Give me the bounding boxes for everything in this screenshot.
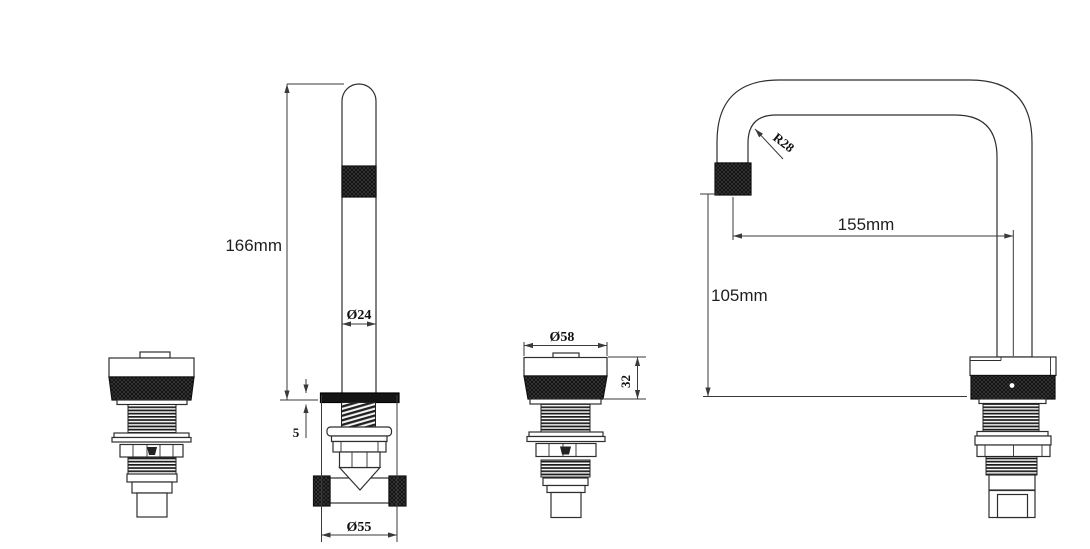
- dim-outlet-height: 105mm: [700, 194, 967, 397]
- body-thread-upper: [983, 404, 1039, 432]
- dim-handle-height-label: 32: [618, 375, 633, 388]
- body-cap: [970, 357, 1056, 376]
- handle2-knurl-band: [524, 376, 607, 399]
- handle-cap: [109, 358, 194, 377]
- handle-washer-1: [114, 433, 189, 438]
- spout-washer-2: [332, 436, 388, 442]
- dim-flange-thickness: 5: [293, 379, 309, 440]
- spout-hex-adapter: [340, 452, 381, 468]
- body-washer-2: [975, 436, 1051, 445]
- handle-top-tab: [140, 352, 170, 358]
- dim-spout-reach: 155mm: [733, 197, 1013, 356]
- dim-flange-thickness-label: 5: [293, 425, 300, 440]
- handle2-washer-2: [527, 437, 605, 442]
- body-thread-lower: [986, 457, 1037, 476]
- deck-flange: [321, 393, 400, 403]
- drawing-surface: 166mm Ø24 5 Ø55 Ø58: [0, 0, 1090, 549]
- handle-thread-upper: [128, 405, 176, 434]
- aerator-knurl-tip: [715, 163, 751, 195]
- dim-handle-diameter: Ø58: [524, 330, 607, 356]
- handle2-base-step: [547, 486, 585, 493]
- body-base-block: [989, 475, 1035, 490]
- dim-flange-diameter-label: Ø55: [347, 520, 372, 535]
- handle-collar: [117, 400, 187, 405]
- spout-section-view: [314, 84, 407, 506]
- dim-bend-radius: R28: [755, 129, 798, 159]
- handle2-thread-lower: [541, 460, 590, 477]
- body-collar: [979, 399, 1046, 404]
- handle-side-view: [109, 352, 194, 517]
- handle-inlet-stem: [137, 493, 167, 517]
- dim-handle-height: 32: [604, 357, 646, 399]
- spout-shank-thread: [342, 403, 376, 428]
- dim-tube-diameter-label: Ø24: [347, 308, 372, 323]
- handle-knurl-band: [109, 377, 194, 400]
- body-inlet-square-inner: [998, 495, 1028, 518]
- spout-tube: [342, 84, 376, 393]
- handle-washer-2: [112, 438, 191, 443]
- dim-tube-diameter: Ø24: [342, 308, 376, 327]
- handle-thread-lower: [128, 458, 176, 474]
- dim-bend-radius-label: R28: [770, 130, 797, 156]
- faucet-technical-drawing: 166mm Ø24 5 Ø55 Ø58: [0, 0, 1090, 549]
- spout-knurl-band: [342, 166, 376, 197]
- body-washer-1: [977, 432, 1048, 437]
- handle-base-block: [127, 474, 177, 482]
- dim-outlet-height-label: 105mm: [711, 286, 768, 305]
- dim-handle-diameter-label: Ø58: [550, 330, 575, 345]
- handle-base-step: [132, 482, 172, 493]
- dim-spout-height-label: 166mm: [225, 236, 282, 255]
- handle2-cap: [524, 358, 607, 377]
- body-indicator-dot: [1010, 383, 1015, 388]
- dim-spout-reach-label: 155mm: [838, 215, 895, 234]
- dim-spout-height: 166mm: [225, 84, 344, 400]
- handle2-thread-upper: [541, 404, 590, 432]
- handle-front-view: [524, 353, 607, 518]
- spout-washer: [327, 427, 392, 436]
- handle2-collar: [530, 399, 601, 404]
- handle2-inlet-stem: [551, 493, 581, 518]
- handle2-washer-1: [529, 432, 603, 437]
- handle2-base-block: [543, 478, 588, 486]
